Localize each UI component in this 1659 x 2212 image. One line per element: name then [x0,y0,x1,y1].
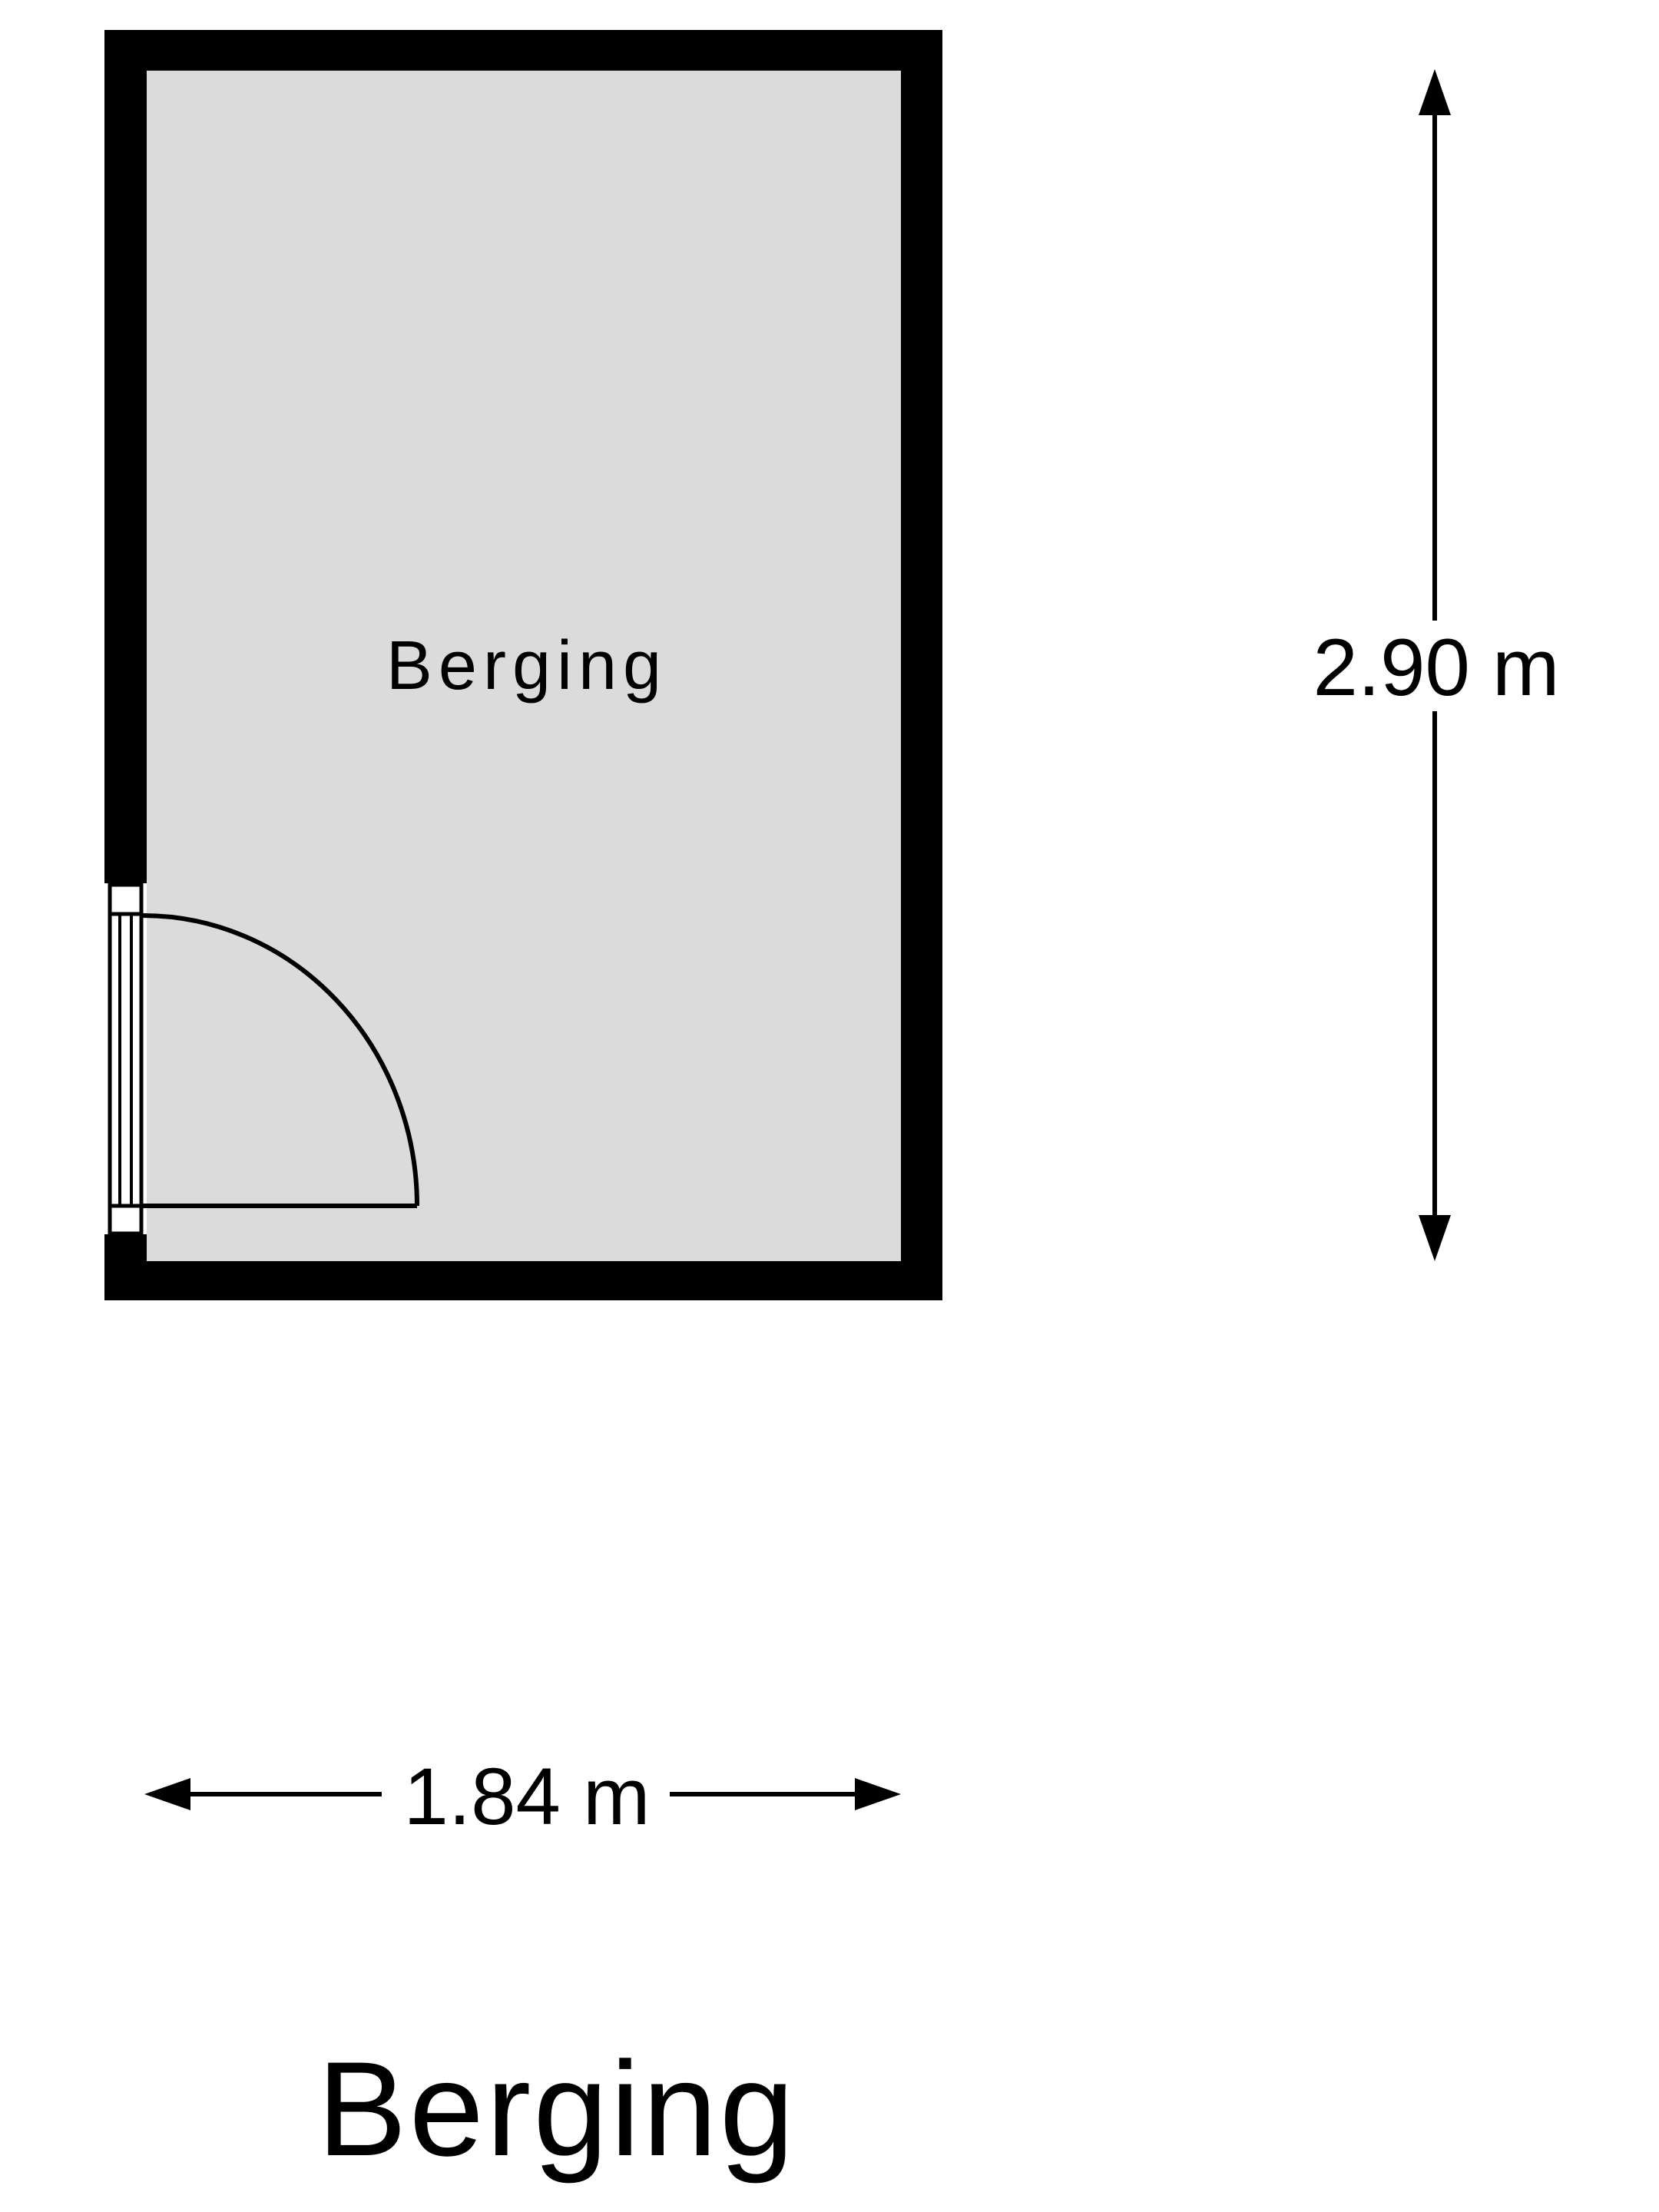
height-dimension: 2.90 m [1313,69,1560,1261]
door-frame-bottom-icon [110,1206,141,1233]
arrow-down-icon [1419,1215,1451,1261]
arrow-up-icon [1419,69,1451,115]
arrow-left-icon [144,1778,190,1810]
door-leaf-closed [110,914,141,1206]
width-dimension: 1.84 m [144,1752,901,1842]
plan-title: Berging [317,2035,796,2184]
width-dimension-label: 1.84 m [404,1752,651,1842]
room-label: Berging [386,628,667,704]
arrow-right-icon [855,1778,901,1810]
door-frame-top-icon [110,885,141,914]
height-dimension-label: 2.90 m [1313,623,1560,713]
floorplan-canvas: Berging 2.90 m 1.84 m Berging [0,0,1659,2212]
